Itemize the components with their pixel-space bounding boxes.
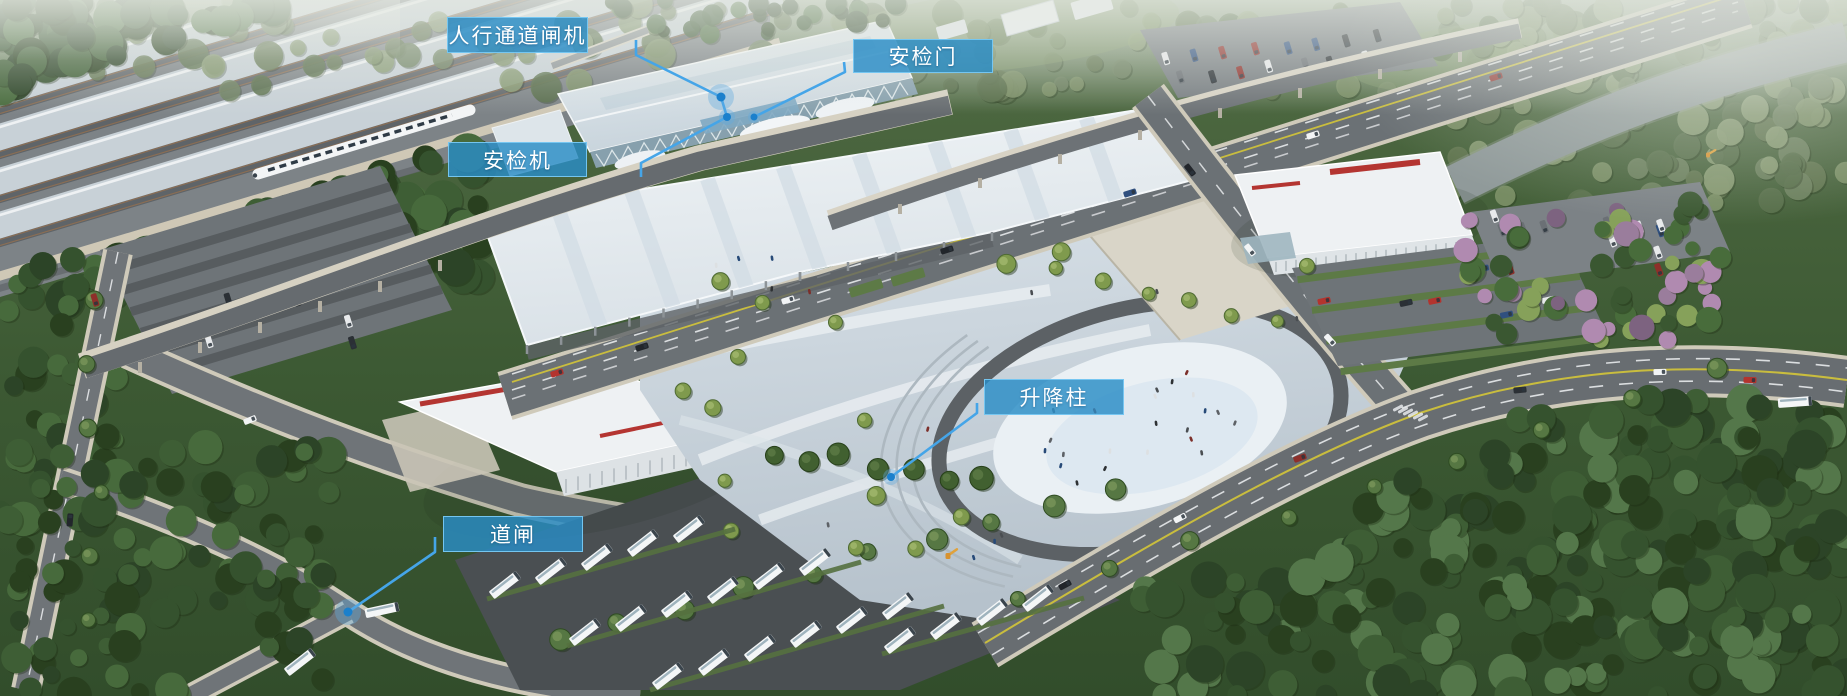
- line-road-barrier: [348, 537, 435, 612]
- line-bollard: [891, 403, 977, 477]
- line-pedestrian-gate-and-scanner: [636, 40, 727, 177]
- label-road-barrier[interactable]: 道闸: [443, 516, 583, 552]
- label-pedestrian-gate[interactable]: 人行通道闸机: [447, 17, 588, 53]
- dot-road-barrier: [335, 599, 361, 625]
- dot-bollard: [883, 469, 899, 485]
- label-security-scanner[interactable]: 安检机: [448, 142, 587, 177]
- station-aerial-view: 人行通道闸机安检门安检机升降柱道闸: [0, 0, 1847, 696]
- line-security-door: [754, 62, 845, 117]
- annotation-overlay: [0, 0, 1847, 696]
- dot-pedestrian-gate: [708, 84, 734, 110]
- dot-security-door: [748, 111, 760, 123]
- label-bollard[interactable]: 升降柱: [984, 379, 1124, 415]
- dot-security-scanner: [719, 109, 735, 125]
- label-security-door[interactable]: 安检门: [853, 39, 993, 73]
